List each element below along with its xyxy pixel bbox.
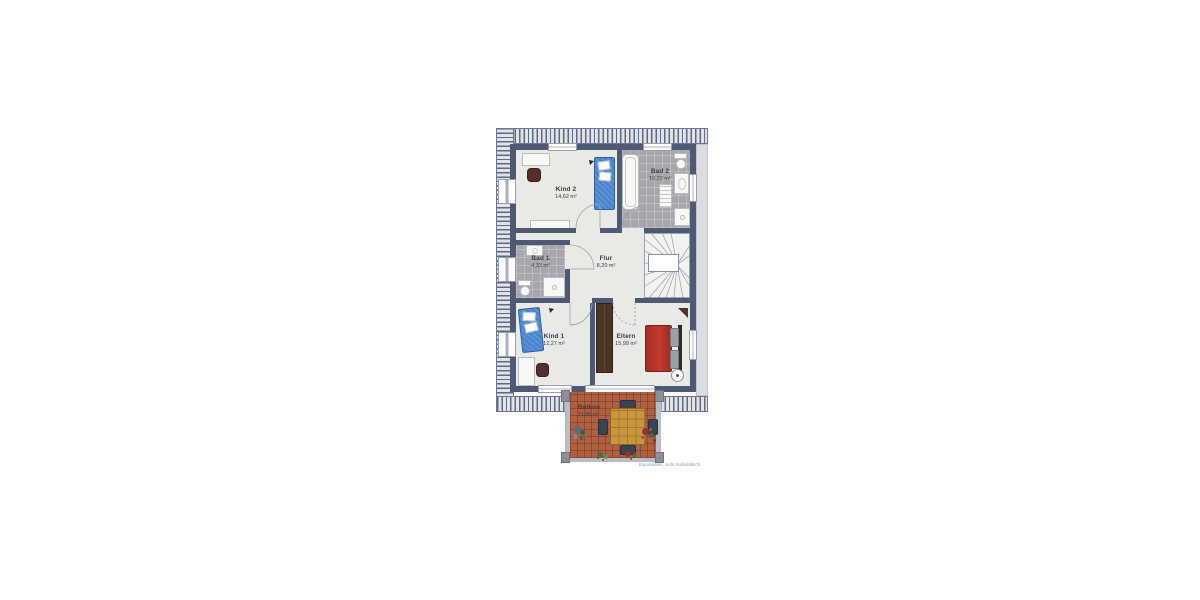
- bad1-sink: [526, 245, 543, 256]
- bad2-window: [643, 143, 672, 151]
- bad1-roof-window: [498, 257, 516, 282]
- kind2-desk-chair: [527, 168, 541, 182]
- roof-hatch-top: [496, 128, 708, 144]
- eltern-floor-fan: [671, 369, 684, 382]
- wall: [565, 269, 570, 298]
- kind2-bed: [594, 157, 615, 210]
- wall: [644, 228, 690, 233]
- bad1-toilet: [518, 280, 531, 297]
- wall: [635, 298, 690, 303]
- bad2-side-window: [689, 174, 697, 202]
- balcony-plant: [625, 451, 631, 457]
- balcony-plant: [597, 452, 603, 458]
- balcony-chair-left: [598, 419, 608, 435]
- kind1-desk: [518, 357, 535, 386]
- wall: [516, 228, 576, 233]
- kind1-roof-window: [498, 332, 516, 357]
- bad2-toilet: [674, 153, 687, 170]
- kind2-roof-window: [498, 179, 516, 204]
- balcony-post: [655, 390, 664, 402]
- wall: [516, 298, 570, 303]
- bathtub: [622, 154, 639, 210]
- balcony-chair-right: [648, 419, 658, 435]
- roof-hatch-bottom-right: [659, 396, 708, 412]
- eltern-pillow: [670, 350, 679, 369]
- page: { "watermark": "Exposéplan, nicht maßstä…: [0, 0, 1200, 600]
- balcony-plant: [642, 428, 649, 435]
- floor-plan: Kind 2 14,62 m² Bad 2 10,22 m² Bad 1 4,3…: [494, 124, 710, 470]
- eltern-pillow: [670, 328, 679, 347]
- balcony-plant: [574, 426, 581, 433]
- roof-band-right: [696, 144, 708, 396]
- kind2-window: [548, 143, 577, 151]
- bad2-shower: [674, 208, 690, 226]
- stair-landing: [648, 254, 679, 272]
- eltern-bed: [645, 325, 682, 372]
- wall: [516, 240, 570, 245]
- balcony-post: [561, 452, 570, 463]
- wall: [590, 303, 595, 386]
- bad2-sink: [674, 173, 689, 194]
- wall: [617, 150, 622, 233]
- wall: [565, 240, 570, 245]
- eltern-bed-blanket: [645, 325, 672, 372]
- kind2-desk: [522, 153, 550, 166]
- kind1-desk-chair: [536, 363, 549, 377]
- bad2-radiator: [659, 184, 672, 208]
- balcony-table: [610, 408, 646, 445]
- balcony-post: [655, 452, 664, 463]
- balcony-post: [561, 390, 570, 402]
- wall: [592, 298, 613, 303]
- wall: [600, 228, 622, 233]
- eltern-side-window: [689, 330, 697, 360]
- bad1-shower: [543, 277, 565, 297]
- balcony-rail-bottom: [565, 458, 661, 462]
- roof-hatch-bottom-left: [496, 396, 568, 412]
- eltern-wardrobe: [596, 303, 613, 373]
- kind1-bed: [518, 307, 544, 353]
- watermark: Exposéplan, nicht maßstäblich: [621, 463, 701, 468]
